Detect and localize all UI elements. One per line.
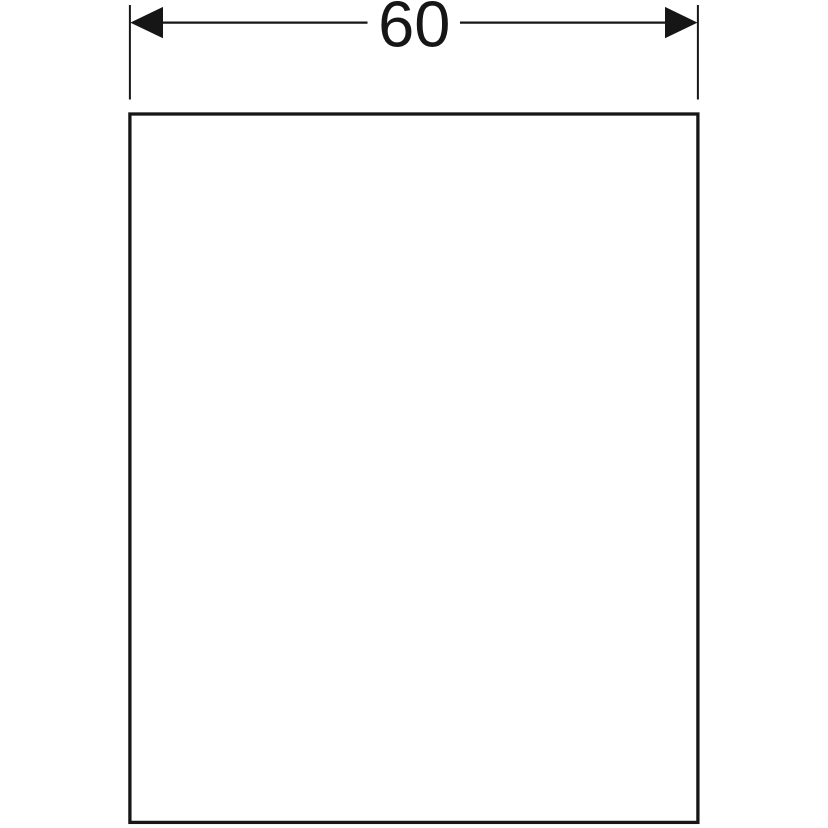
svg-text:60: 60 (378, 0, 450, 61)
